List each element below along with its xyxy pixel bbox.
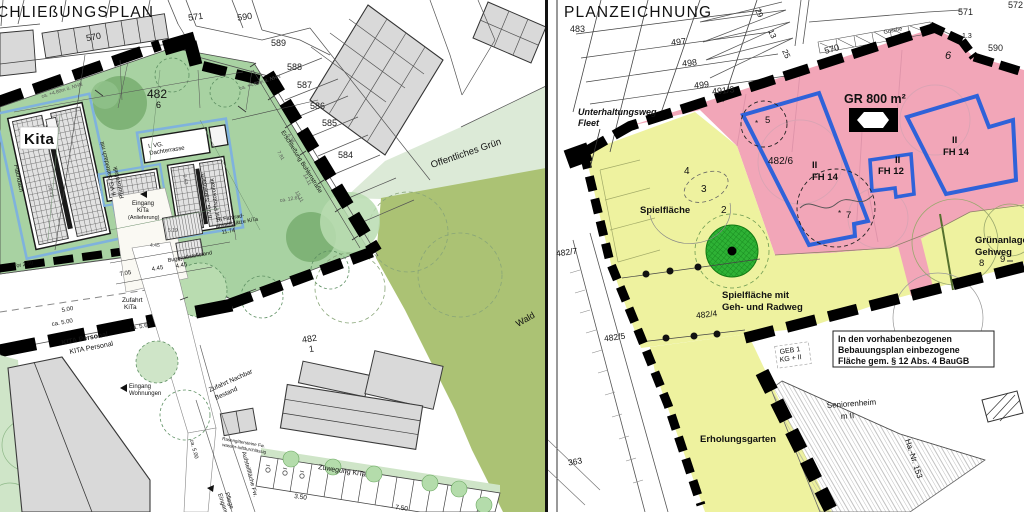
svg-text:II: II [895, 155, 900, 166]
svg-text:Eingang: Eingang [129, 384, 151, 390]
svg-text:Eingang: Eingang [132, 201, 154, 207]
svg-text:7.50: 7.50 [395, 504, 409, 512]
svg-text:FH 12: FH 12 [878, 166, 904, 177]
svg-text:Fleet: Fleet [578, 118, 600, 128]
svg-text:Erholungsgarten: Erholungsgarten [700, 434, 776, 445]
svg-text:4.45: 4.45 [150, 243, 160, 249]
svg-text:590: 590 [237, 11, 253, 23]
svg-text:586: 586 [310, 101, 325, 111]
svg-text:m II: m II [841, 411, 855, 421]
svg-text:FH 14: FH 14 [943, 147, 970, 158]
svg-text:7: 7 [846, 210, 851, 221]
svg-text:*: * [755, 119, 758, 128]
svg-text:GR 800 m²: GR 800 m² [844, 92, 906, 106]
svg-text:1.3: 1.3 [962, 33, 972, 40]
svg-text:588: 588 [287, 62, 302, 72]
svg-text:In den vorhabenbezogenen: In den vorhabenbezogenen [838, 334, 952, 344]
svg-text:*: * [838, 209, 841, 218]
svg-text:Zufahrt: Zufahrt [122, 297, 143, 304]
svg-text:498: 498 [682, 57, 698, 69]
svg-text:(Anlieferung): (Anlieferung) [128, 215, 160, 221]
svg-text:587: 587 [297, 80, 312, 90]
svg-text:CHLIEßUNGSPLAN: CHLIEßUNGSPLAN [0, 4, 154, 21]
svg-text:584: 584 [338, 150, 353, 160]
svg-text:5.19: 5.19 [168, 228, 178, 234]
svg-text:8: 8 [979, 258, 984, 269]
svg-text:497: 497 [671, 36, 687, 48]
svg-text:Bebauungsplan einbezogene: Bebauungsplan einbezogene [838, 345, 960, 355]
svg-text:Geh- und Radweg: Geh- und Radweg [722, 302, 803, 313]
svg-text:3: 3 [701, 184, 707, 195]
svg-text:Grünanlage: Grünanlage [975, 235, 1024, 246]
svg-text:Spielfläche mit: Spielfläche mit [722, 290, 790, 301]
svg-text:II: II [812, 160, 817, 171]
svg-text:571: 571 [958, 7, 973, 17]
svg-text:Fläche gem. § 12 Abs. 4 BauGB: Fläche gem. § 12 Abs. 4 BauGB [838, 356, 969, 366]
svg-text:II: II [952, 135, 957, 146]
svg-text:4: 4 [684, 166, 690, 177]
svg-text:Unterhaltungsweg: Unterhaltungsweg [578, 107, 657, 117]
svg-text:5: 5 [765, 115, 770, 126]
svg-text:FH 14: FH 14 [812, 172, 839, 183]
svg-text:9: 9 [1000, 254, 1005, 265]
svg-text:589: 589 [271, 38, 286, 48]
svg-text:Kita: Kita [24, 131, 54, 148]
svg-text:482/6: 482/6 [768, 156, 793, 167]
svg-text:Spielfläche: Spielfläche [640, 205, 690, 216]
svg-text:KiTa: KiTa [124, 304, 137, 311]
svg-text:Wohnungen: Wohnungen [129, 391, 161, 397]
svg-text:572: 572 [1008, 0, 1023, 10]
svg-text:585: 585 [322, 118, 337, 128]
svg-text:590: 590 [988, 43, 1003, 53]
svg-text:PLANZEICHNUNG: PLANZEICHNUNG [564, 4, 712, 21]
svg-text:499: 499 [694, 79, 710, 91]
svg-text:483: 483 [570, 24, 585, 34]
svg-text:Gehweg: Gehweg [975, 247, 1012, 258]
svg-text:6: 6 [156, 100, 161, 110]
svg-text:571: 571 [188, 11, 204, 23]
svg-text:KiTa: KiTa [137, 208, 149, 214]
svg-text:2: 2 [721, 205, 727, 216]
svg-text:6: 6 [945, 50, 952, 62]
